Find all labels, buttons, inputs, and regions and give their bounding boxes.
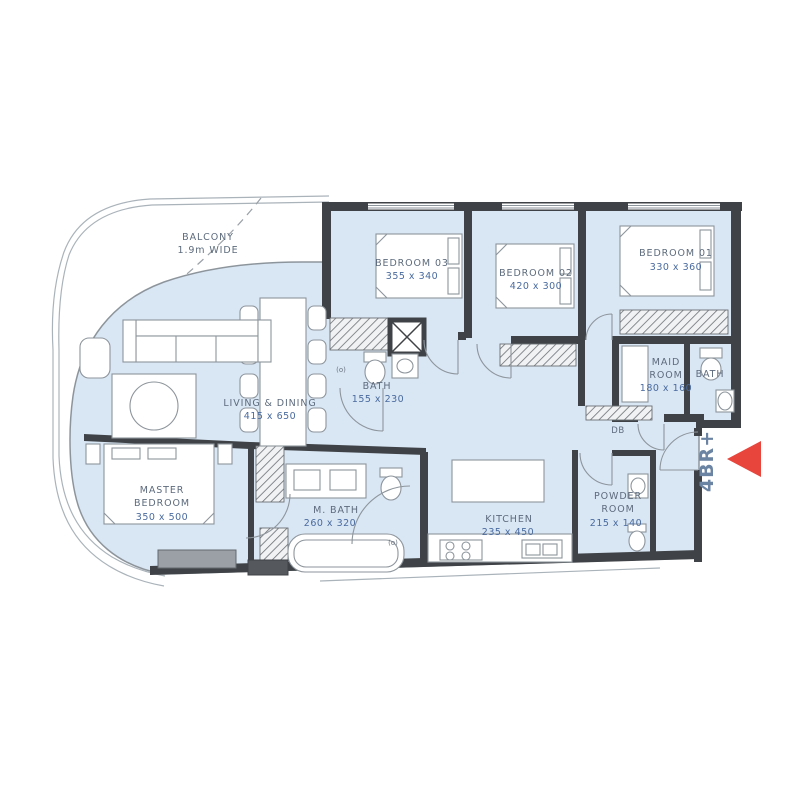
label-bedroom-03-name: BEDROOM 03 <box>375 258 449 269</box>
label-kitchen-dims: 235 x 450 <box>482 527 534 538</box>
master-dresser <box>158 550 236 568</box>
bed-bedroom-01 <box>620 226 714 296</box>
door-symbol-bath: (o) <box>336 366 346 374</box>
wall-powder-west <box>572 450 578 560</box>
cabinet-dark <box>248 560 288 575</box>
label-bedroom-01-name: BEDROOM 01 <box>639 248 713 259</box>
floor-plan: BALCONY 1.9m WIDE BEDROOM 03 355 x 340 B… <box>0 0 800 800</box>
wall-bed03-bed02 <box>464 207 472 338</box>
unit-type-label: 4BR+ <box>696 430 718 492</box>
label-bedroom-02-name: BEDROOM 02 <box>499 268 573 279</box>
closet-bed03 <box>330 318 388 350</box>
label-kitchen-name: KITCHEN <box>485 514 532 525</box>
wardrobe-bed01 <box>620 310 728 334</box>
label-balcony-name: BALCONY <box>182 232 234 243</box>
label-maid-bath-name: BATH <box>696 369 725 380</box>
label-db: DB <box>611 426 624 436</box>
label-master-bedroom-dims: 350 x 500 <box>136 512 188 523</box>
wall-maid-bath <box>684 342 690 422</box>
wall-bed03-bottom-right <box>458 332 466 340</box>
label-bedroom-02-dims: 420 x 300 <box>510 281 562 292</box>
label-balcony-dims: 1.9m WIDE <box>178 245 239 256</box>
label-bath-dims: 155 x 230 <box>352 394 404 405</box>
label-living-dining-dims: 415 x 650 <box>244 411 296 422</box>
closet-mbath-upper <box>256 446 284 502</box>
label-living-dining-name: LIVING & DINING <box>223 398 316 409</box>
entry-arrow-icon <box>727 441 761 477</box>
wall-bed02-bed01 <box>578 207 586 340</box>
wall-master-east <box>248 448 254 570</box>
wall-powder-east <box>650 450 656 560</box>
label-master-bedroom-name: MASTER <box>140 485 185 496</box>
duct-shaft <box>390 320 424 354</box>
label-bedroom-01-dims: 330 x 360 <box>650 262 702 273</box>
label-powder-room-name: POWDER <box>594 491 642 502</box>
wall-powder-top <box>612 450 652 456</box>
label-bedroom-03-dims: 355 x 340 <box>386 271 438 282</box>
label-maid-room-name2: ROOM <box>649 370 682 381</box>
floor-plan-canvas: BALCONY 1.9m WIDE BEDROOM 03 355 x 340 B… <box>0 0 800 800</box>
label-maid-room-dims: 180 x 160 <box>640 383 692 394</box>
windows <box>368 204 720 210</box>
label-bath-name: BATH <box>363 381 392 392</box>
wall-bed02-bottom <box>511 336 580 344</box>
label-powder-room-name2: ROOM <box>601 504 634 515</box>
wall-kitchen-west <box>420 452 428 560</box>
wall-bed01-bottom <box>612 336 740 344</box>
unit-marker: 4BR+ <box>696 430 761 492</box>
label-master-bath-name: M. BATH <box>313 505 359 516</box>
wall-maid-bottom-right <box>664 414 704 422</box>
label-master-bedroom-name2: BEDROOM <box>134 498 190 509</box>
door-symbol-kitchen: (o) <box>388 539 398 547</box>
wall-corridor-east <box>578 340 585 406</box>
wall-bed03-left <box>322 207 331 319</box>
label-master-bath-dims: 260 x 320 <box>304 518 356 529</box>
label-powder-room-dims: 215 x 140 <box>590 518 642 529</box>
label-maid-room-name: MAID <box>652 357 680 368</box>
db-cabinet <box>586 406 652 420</box>
